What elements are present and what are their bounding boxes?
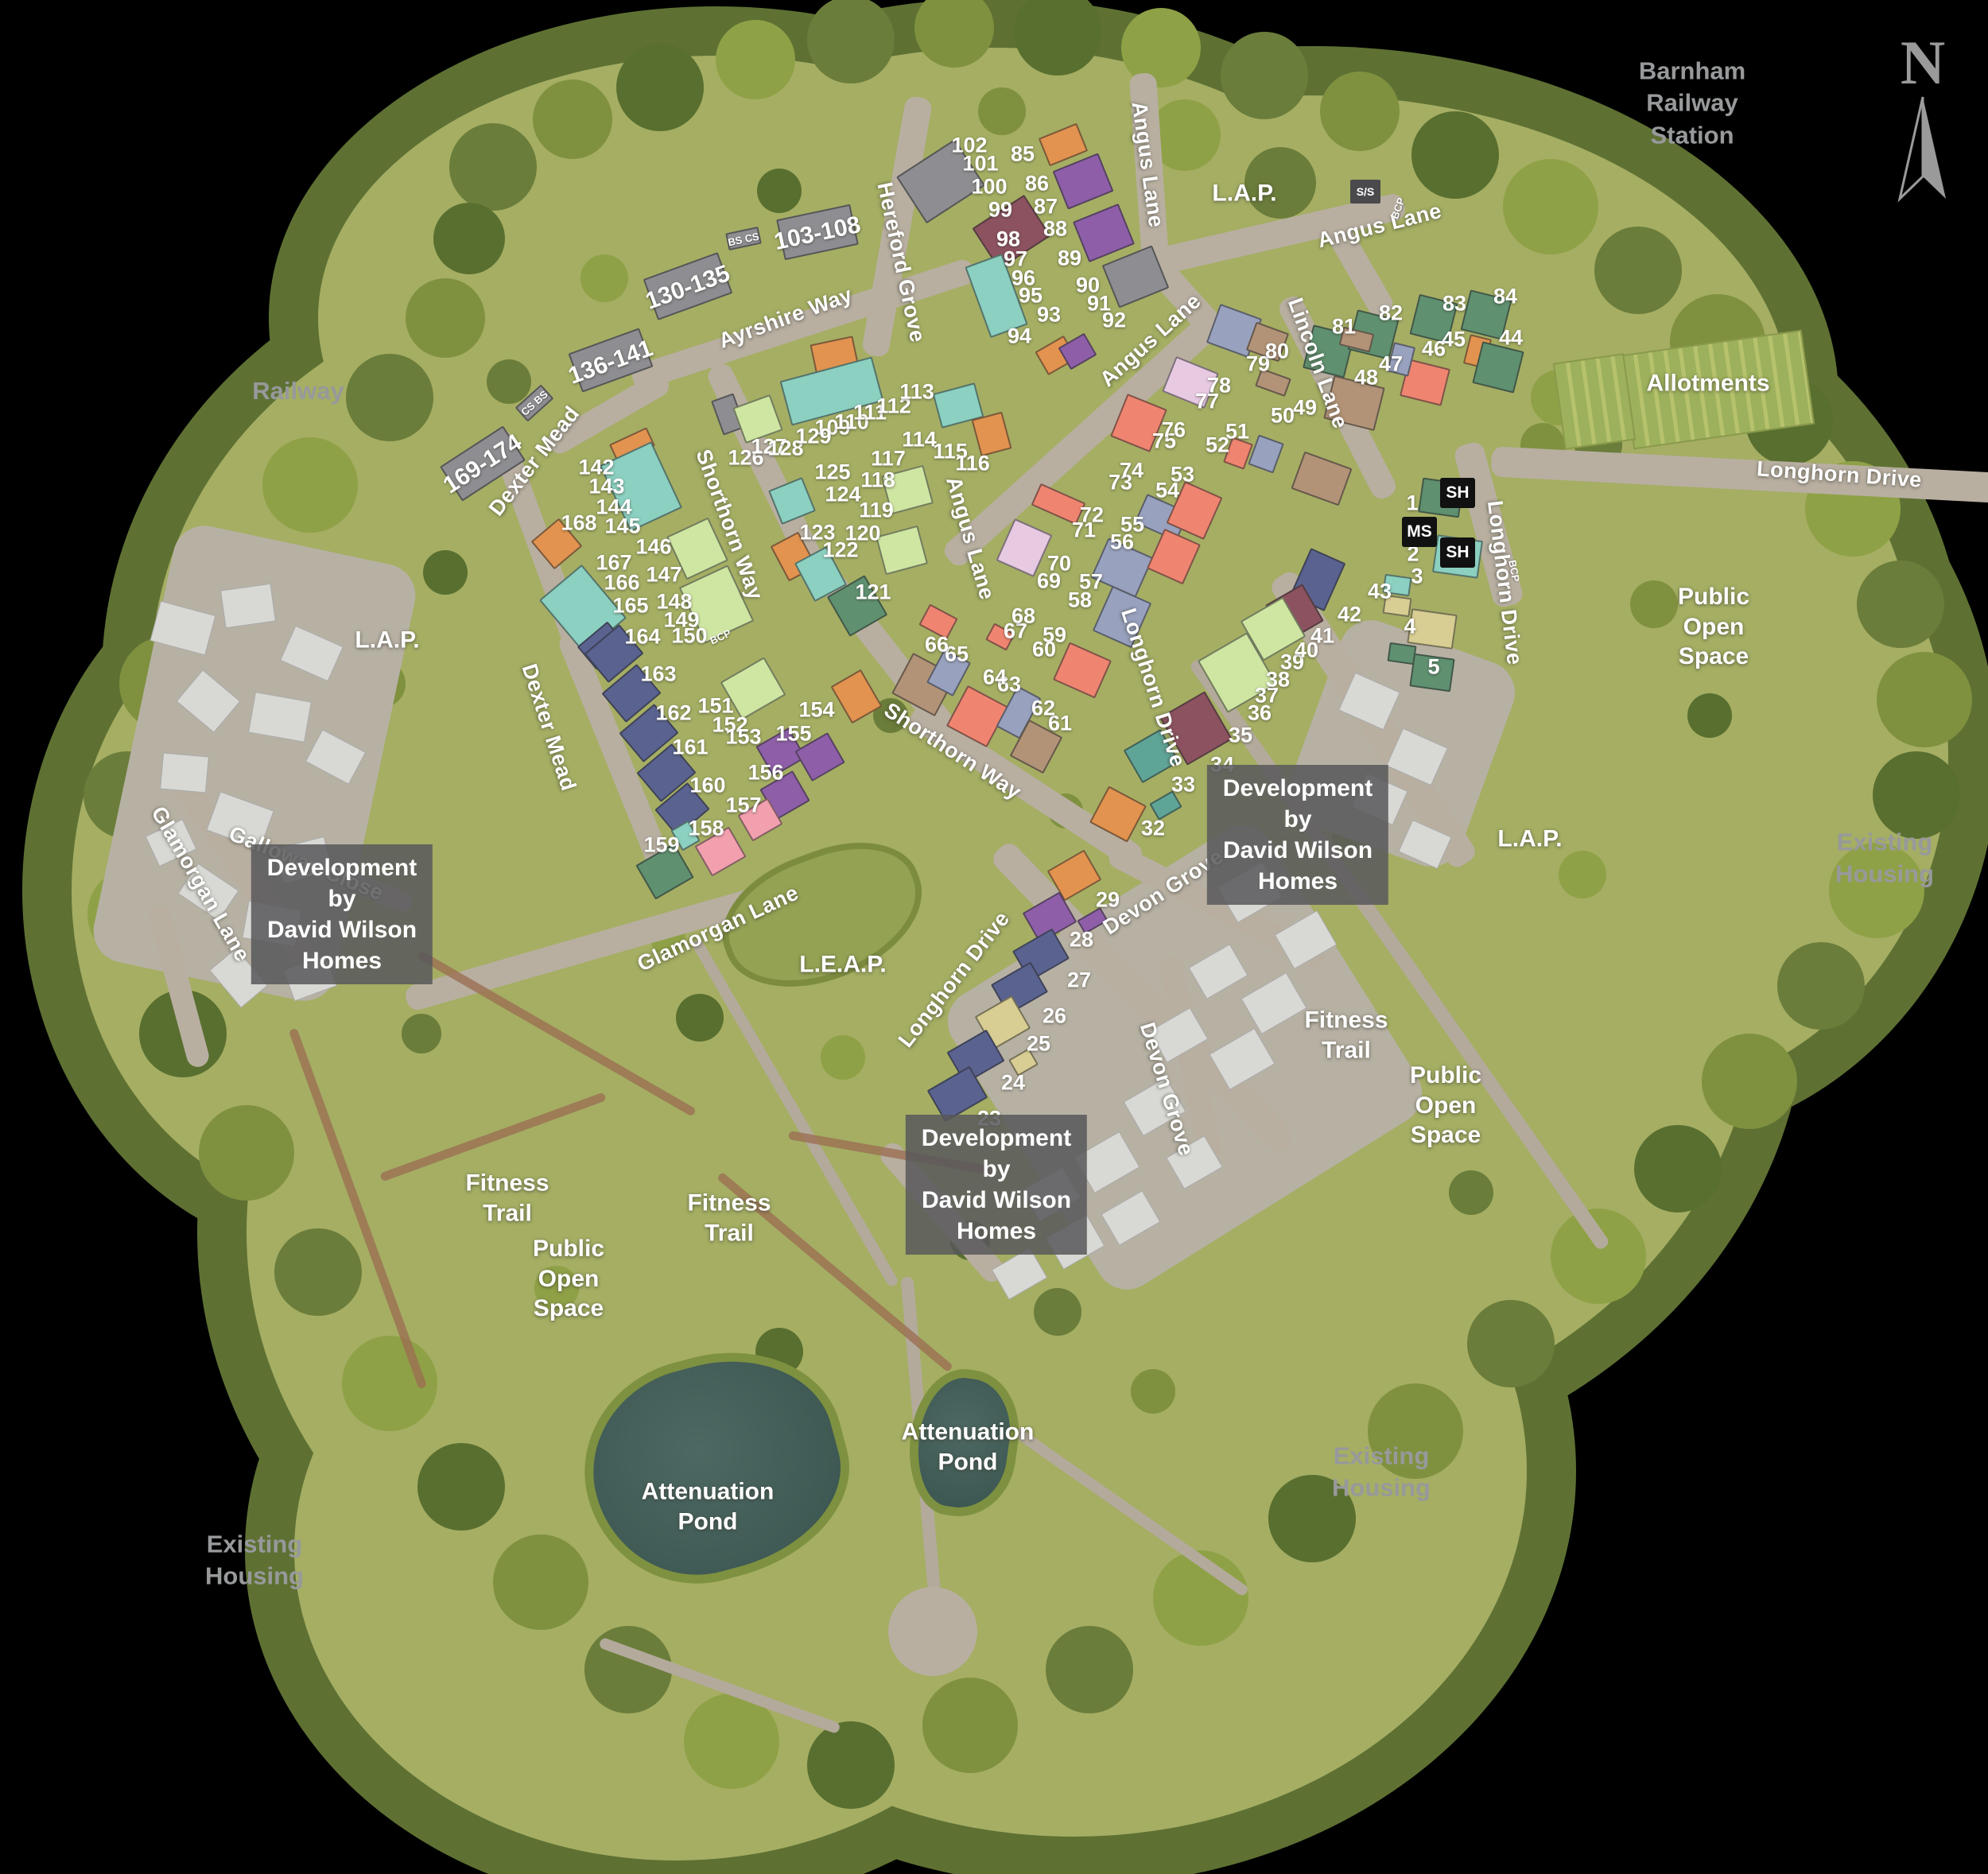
amenity-label: Fitness Trail (465, 1169, 549, 1228)
plot-number: 32 (1141, 817, 1165, 841)
plot-number: 44 (1499, 326, 1523, 351)
tree-cluster-icon (1687, 693, 1732, 738)
amenity-label: Public Open Space (1410, 1061, 1481, 1150)
plot-number: 25 (1027, 1032, 1050, 1057)
tree-cluster-icon (1411, 111, 1499, 199)
tree-cluster-icon (274, 1228, 362, 1316)
plot-number: 5 (1427, 655, 1439, 680)
tree-cluster-icon (406, 278, 485, 358)
development-attribution-box: Development by David Wilson Homes (906, 1115, 1087, 1255)
plot-number: 81 (1332, 315, 1356, 339)
amenity-label: Attenuation Pond (642, 1477, 775, 1537)
plot-number: 60 (1032, 638, 1056, 662)
plot-number: 82 (1379, 301, 1403, 326)
plot-number: 62 (1031, 696, 1055, 721)
plot-number: 72 (1080, 503, 1104, 528)
development-attribution-box: Development by David Wilson Homes (1207, 765, 1388, 905)
tree-cluster-icon (616, 44, 704, 131)
plot-number: 70 (1047, 552, 1071, 576)
plot-number: 157 (725, 793, 761, 818)
plot-number: 87 (1034, 195, 1058, 219)
plot-number: 124 (825, 483, 860, 507)
tree-cluster-icon (1702, 1034, 1797, 1129)
plot-number: 88 (1043, 217, 1067, 242)
tree-cluster-icon (346, 354, 433, 441)
plot-number: 85 (1011, 142, 1035, 167)
plot-number: 159 (643, 833, 679, 858)
north-letter: N (1893, 32, 1952, 94)
tree-cluster-icon (1873, 751, 1960, 839)
development-attribution-box: Development by David Wilson Homes (251, 844, 433, 984)
tree-cluster-icon (1034, 1288, 1081, 1336)
plot-number: 165 (612, 594, 648, 619)
plot-number: 94 (1008, 324, 1031, 349)
dwh-building (220, 584, 276, 628)
plot-number: 100 (971, 175, 1007, 200)
plot-number: 99 (988, 198, 1012, 223)
plot-number: 156 (747, 761, 783, 786)
tree-cluster-icon (402, 1014, 441, 1053)
north-compass: N (1893, 32, 1952, 209)
tree-cluster-icon (978, 87, 1026, 135)
plot-number: 113 (899, 380, 934, 405)
plot-number: 74 (1120, 459, 1143, 483)
plot-number: 114 (902, 428, 937, 452)
tree-cluster-icon (1634, 1125, 1722, 1212)
tree-cluster-icon (584, 1626, 672, 1713)
plot-number: 163 (640, 662, 676, 687)
tree-cluster-icon (1559, 851, 1606, 898)
plot-number: 146 (635, 535, 671, 560)
tree-cluster-icon (1551, 1209, 1646, 1304)
tree-cluster-icon (487, 359, 531, 404)
plot-number: 1 (1406, 491, 1418, 516)
amenity-label: L.A.P. (1497, 824, 1562, 854)
tree-cluster-icon (821, 1035, 865, 1080)
external-context-label: Barnham Railway Station (1639, 56, 1745, 152)
tree-cluster-icon (1467, 1300, 1555, 1387)
plot-number: 41 (1310, 624, 1334, 649)
external-context-label: Existing Housing (1835, 827, 1934, 891)
plot-number: 58 (1068, 588, 1092, 613)
amenity-label: L.E.A.P. (799, 949, 886, 980)
plot-number: 153 (725, 725, 761, 750)
plot-number: 125 (814, 460, 850, 485)
plot-number: 48 (1354, 366, 1378, 390)
plot-number: 35 (1229, 724, 1252, 748)
amenity-label: Fitness Trail (687, 1189, 771, 1248)
plot-number: 52 (1206, 433, 1229, 458)
plot-number: 47 (1379, 352, 1403, 377)
tree-cluster-icon (807, 0, 895, 83)
tree-cluster-icon (1320, 72, 1400, 151)
site-plan-map: 1234523242526272829323334353637383940414… (0, 0, 1988, 1874)
facility-badge: SH (1440, 478, 1475, 508)
plot-number: 56 (1110, 530, 1134, 555)
tree-cluster-icon (433, 203, 505, 274)
plot-number: 46 (1422, 337, 1446, 362)
amenity-label: Fitness Trail (1304, 1006, 1388, 1065)
tree-cluster-icon (1630, 580, 1678, 628)
tree-cluster-icon (533, 80, 612, 159)
plot-number: 83 (1442, 292, 1466, 316)
plot-number: 26 (1043, 1004, 1066, 1029)
plot-number: 4 (1404, 615, 1415, 639)
tree-cluster-icon (676, 994, 724, 1042)
plot-number: 92 (1102, 308, 1126, 333)
tree-cluster-icon (1046, 1626, 1133, 1713)
external-context-label: Railway (252, 375, 344, 407)
tree-cluster-icon (423, 550, 468, 595)
plot-number: 164 (624, 625, 660, 650)
north-arrow-icon (1893, 94, 1952, 205)
tree-cluster-icon (1877, 652, 1972, 747)
tree-cluster-icon (449, 123, 537, 211)
plot-number: 116 (955, 452, 990, 476)
tree-cluster-icon (580, 254, 628, 302)
tree-cluster-icon (922, 1678, 1018, 1773)
tree-cluster-icon (1221, 32, 1308, 119)
plot-number: 54 (1155, 479, 1179, 503)
tree-cluster-icon (199, 1105, 294, 1201)
plot-number: 123 (799, 521, 835, 545)
plot-number: 64 (983, 665, 1007, 690)
plot-number: 68 (1011, 604, 1035, 629)
tree-cluster-icon (757, 169, 802, 213)
facility-badge: MS (1402, 517, 1437, 547)
plot-number: 76 (1162, 418, 1186, 443)
plot-number: 129 (795, 425, 831, 449)
plot-number: 50 (1271, 404, 1295, 429)
plot-number: 49 (1293, 396, 1317, 421)
plot-number: 119 (859, 499, 894, 523)
plot-number: 66 (925, 633, 949, 658)
plot-number: 147 (646, 563, 681, 588)
plot-number: 43 (1368, 580, 1392, 604)
plot-number: 86 (1025, 172, 1049, 196)
plot-number: 154 (798, 698, 834, 723)
plot-number: 98 (996, 227, 1020, 252)
plot-number: 27 (1067, 968, 1091, 993)
external-context-label: Existing Housing (205, 1529, 304, 1593)
roundabout (888, 1587, 977, 1676)
tree-cluster-icon (493, 1535, 588, 1630)
plot-number: 118 (860, 468, 895, 493)
amenity-label: Public Open Space (533, 1234, 604, 1324)
plot-number: 3 (1411, 565, 1423, 589)
tree-cluster-icon (716, 20, 795, 99)
plot-number: 28 (1070, 928, 1093, 953)
external-context-label: Existing Housing (1332, 1441, 1431, 1505)
plot-number: 160 (689, 774, 725, 798)
tree-cluster-icon (1777, 942, 1865, 1030)
amenity-label: Public Open Space (1678, 582, 1749, 672)
plot-number: 33 (1171, 773, 1195, 797)
amenity-label: Attenuation Pond (902, 1418, 1035, 1477)
plot-number: 121 (855, 580, 891, 605)
tree-cluster-icon (1131, 1369, 1175, 1414)
tree-cluster-icon (1449, 1170, 1493, 1215)
plot-number: 168 (561, 511, 596, 536)
plot-number: 162 (655, 701, 691, 726)
plot-number: 150 (671, 624, 707, 649)
plot-number: 161 (672, 735, 708, 760)
dwh-building (160, 753, 209, 793)
plot-number: 89 (1058, 246, 1081, 271)
tree-cluster-icon (262, 437, 358, 533)
plot-number: 24 (1001, 1071, 1025, 1096)
allotments-plots (1553, 353, 1636, 449)
amenity-label: L.A.P. (355, 625, 419, 655)
plot-number: 102 (951, 134, 987, 158)
plot-number: 158 (688, 817, 724, 841)
amenity-label: Allotments (1646, 368, 1769, 398)
tree-cluster-icon (1503, 159, 1598, 254)
plot-number: 84 (1493, 285, 1517, 309)
plot-number: 78 (1207, 374, 1231, 398)
plot-number: 155 (775, 722, 811, 747)
tree-cluster-icon (1594, 227, 1682, 314)
plot-number: 167 (596, 551, 631, 576)
tree-cluster-icon (807, 1721, 895, 1809)
plot-number: 42 (1338, 603, 1361, 627)
substation-badge: S/S (1350, 180, 1380, 204)
tree-cluster-icon (1857, 561, 1944, 648)
amenity-label: L.A.P. (1212, 178, 1276, 208)
tree-cluster-icon (417, 1443, 505, 1531)
plot-number: 80 (1265, 339, 1289, 364)
facility-badge: SH (1440, 537, 1475, 568)
